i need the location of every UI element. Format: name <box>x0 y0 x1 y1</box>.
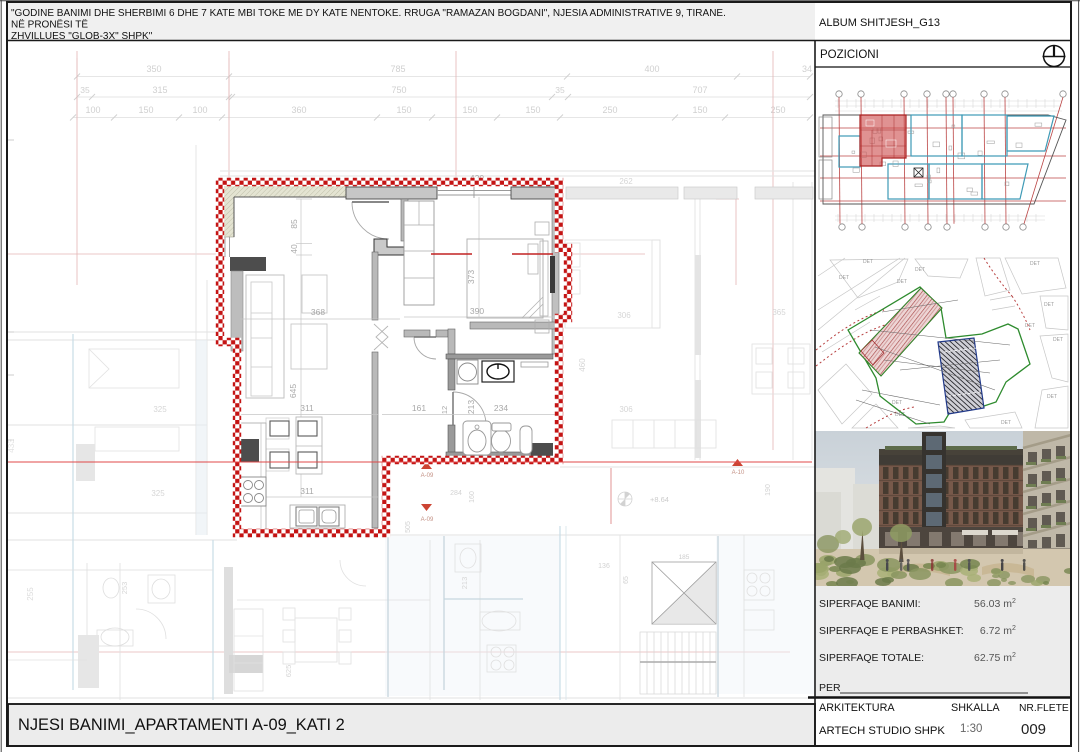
svg-text:35: 35 <box>555 85 565 95</box>
svg-text:150: 150 <box>462 105 477 115</box>
svg-text:65: 65 <box>623 576 630 584</box>
svg-text:161: 161 <box>412 403 426 413</box>
svg-text:262: 262 <box>619 177 633 186</box>
svg-text:34: 34 <box>802 64 812 74</box>
svg-text:400: 400 <box>644 64 659 74</box>
svg-text:DET: DET <box>897 279 907 285</box>
svg-text:253: 253 <box>120 582 129 595</box>
svg-text:6.72 m: 6.72 m <box>980 625 1012 637</box>
svg-text:DET: DET <box>1025 323 1035 329</box>
svg-text:185: 185 <box>679 554 690 561</box>
svg-text:645: 645 <box>288 384 298 398</box>
svg-text:SHKALLA: SHKALLA <box>951 702 1000 714</box>
svg-text:373: 373 <box>466 270 476 284</box>
svg-text:150: 150 <box>138 105 153 115</box>
svg-text:DET: DET <box>915 267 925 273</box>
svg-text:ARKITEKTURA: ARKITEKTURA <box>819 702 895 714</box>
svg-text:SIPERFAQE E PERBASHKET:: SIPERFAQE E PERBASHKET: <box>819 625 964 637</box>
svg-text:2: 2 <box>1012 598 1016 605</box>
svg-text:A-09: A-09 <box>421 517 434 523</box>
svg-text:625: 625 <box>284 665 293 678</box>
svg-text:1:30: 1:30 <box>960 723 982 735</box>
svg-text:"GODINE BANIMI DHE SHERBIMI 6: "GODINE BANIMI DHE SHERBIMI 6 DHE 7 KATE… <box>11 8 726 19</box>
svg-text:150: 150 <box>396 105 411 115</box>
svg-text:ALBUM SHITJESH_G13: ALBUM SHITJESH_G13 <box>819 17 940 29</box>
svg-text:SIPERFAQE TOTALE:: SIPERFAQE TOTALE: <box>819 652 924 664</box>
svg-text:40: 40 <box>289 244 299 254</box>
svg-text:284: 284 <box>450 490 462 497</box>
svg-text:DET: DET <box>839 275 849 281</box>
svg-text:100: 100 <box>192 105 207 115</box>
svg-text:460: 460 <box>578 358 587 372</box>
svg-text:213: 213 <box>466 400 476 414</box>
svg-text:DET: DET <box>1047 394 1057 400</box>
svg-text:390: 390 <box>470 306 484 316</box>
svg-text:NË PRONËSI TË: NË PRONËSI TË <box>11 19 88 31</box>
svg-text:433: 433 <box>7 439 16 453</box>
svg-text:150: 150 <box>525 105 540 115</box>
svg-text:213: 213 <box>460 577 469 590</box>
svg-text:DET: DET <box>1044 302 1054 308</box>
svg-text:85: 85 <box>289 219 299 229</box>
svg-text:136: 136 <box>598 563 610 570</box>
svg-text:365: 365 <box>772 308 786 317</box>
svg-text:62.75 m: 62.75 m <box>974 652 1012 664</box>
svg-text:311: 311 <box>300 486 314 496</box>
svg-text:368: 368 <box>311 307 325 317</box>
svg-text:234: 234 <box>494 403 508 413</box>
svg-text:306: 306 <box>617 311 631 320</box>
svg-text:315: 315 <box>152 85 167 95</box>
svg-text:DET: DET <box>892 400 902 406</box>
svg-text:DET: DET <box>1053 337 1063 343</box>
svg-text:360: 360 <box>291 105 306 115</box>
svg-text:DET: DET <box>1001 420 1011 426</box>
svg-text:12: 12 <box>440 406 449 414</box>
svg-text:160: 160 <box>469 491 476 503</box>
svg-text:250: 250 <box>602 105 617 115</box>
svg-text:NJESI BANIMI_APARTAMENTI A-09_: NJESI BANIMI_APARTAMENTI A-09_KATI 2 <box>18 716 345 734</box>
svg-text:306: 306 <box>619 405 633 414</box>
svg-text:190: 190 <box>765 484 772 496</box>
svg-text:009: 009 <box>1021 721 1046 738</box>
svg-text:150: 150 <box>692 105 707 115</box>
svg-text:350: 350 <box>146 64 161 74</box>
svg-text:750: 750 <box>391 85 406 95</box>
svg-text:325: 325 <box>153 405 167 414</box>
svg-text:ARTECH STUDIO SHPK: ARTECH STUDIO SHPK <box>819 725 945 737</box>
svg-text:PER: PER <box>819 682 841 694</box>
svg-text:POZICIONI: POZICIONI <box>820 49 879 61</box>
svg-text:A-10: A-10 <box>732 470 745 476</box>
svg-text:100: 100 <box>85 105 100 115</box>
svg-text:311: 311 <box>300 403 314 413</box>
svg-text:SIPERFAQE BANIMI:: SIPERFAQE BANIMI: <box>819 598 921 610</box>
svg-text:NR.FLETE: NR.FLETE <box>1019 703 1069 714</box>
svg-text:325: 325 <box>151 489 165 498</box>
svg-text:A-09: A-09 <box>421 473 434 479</box>
svg-text:+8.64: +8.64 <box>650 495 669 504</box>
svg-text:2: 2 <box>1012 652 1016 659</box>
svg-text:DET: DET <box>1030 261 1040 267</box>
svg-text:785: 785 <box>390 64 405 74</box>
svg-text:505: 505 <box>405 521 412 533</box>
svg-text:255: 255 <box>26 587 35 601</box>
svg-text:2: 2 <box>1012 625 1016 632</box>
svg-text:DET: DET <box>863 259 873 265</box>
svg-text:35: 35 <box>80 85 90 95</box>
svg-text:707: 707 <box>692 85 707 95</box>
svg-text:56.03 m: 56.03 m <box>974 598 1012 610</box>
